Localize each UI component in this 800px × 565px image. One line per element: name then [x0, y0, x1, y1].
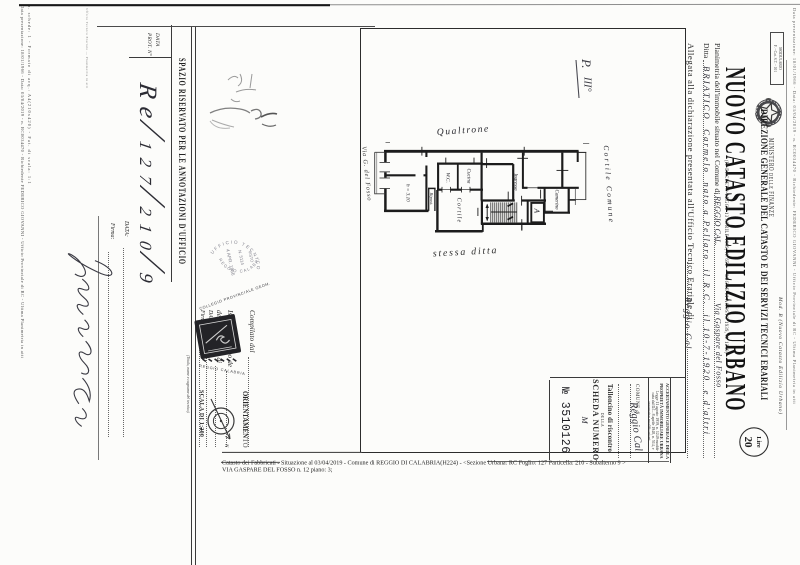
svg-text:UFFICIO TECNICO ERARIALE: UFFICIO TECNICO ERARIALE [1, 0, 325, 275]
svg-text:4 APR. 1966: 4 APR. 1966 [224, 249, 236, 277]
svg-text:Catasto dei Fabbricati - Situa: Catasto dei Fabbricati - Situazione al 0… [222, 459, 626, 466]
svg-text:h = 3.10: h = 3.10 [405, 184, 411, 202]
svg-text:VIA GASPARE DEL FOSSO n. 12 pi: VIA GASPARE DEL FOSSO n. 12 piano: 3; [222, 468, 333, 474]
svg-text:Via G. del Fosso: Via G. del Fosso [360, 146, 373, 202]
svg-text:COLLEGIO PROVINCIALE GEOM.: COLLEGIO PROVINCIALE GEOM. [199, 281, 271, 311]
svg-text:Cortile: Cortile [456, 198, 463, 224]
svg-text:stessa ditta: stessa ditta [433, 245, 499, 259]
svg-text:REGGIO CALABRIA: REGGIO CALABRIA [199, 364, 246, 376]
svg-text:Cucina: Cucina [466, 169, 472, 184]
svg-text:Cortile Comune: Cortile Comune [602, 145, 616, 224]
svg-text:REGGIO CALABRIA: REGGIO CALABRIA [1, 0, 323, 279]
svg-text:VISTO: VISTO [247, 250, 254, 263]
svg-text:Qualtrone: Qualtrone [437, 124, 491, 138]
svg-text:W.C.: W.C. [445, 173, 451, 183]
svg-text:Ingresso: Ingresso [512, 173, 517, 192]
svg-text:N. 5114: N. 5114 [237, 250, 245, 266]
svg-text:A: A [532, 208, 541, 214]
svg-text:Ripost.: Ripost. [429, 192, 434, 206]
svg-text:Camerino: Camerino [554, 190, 559, 211]
